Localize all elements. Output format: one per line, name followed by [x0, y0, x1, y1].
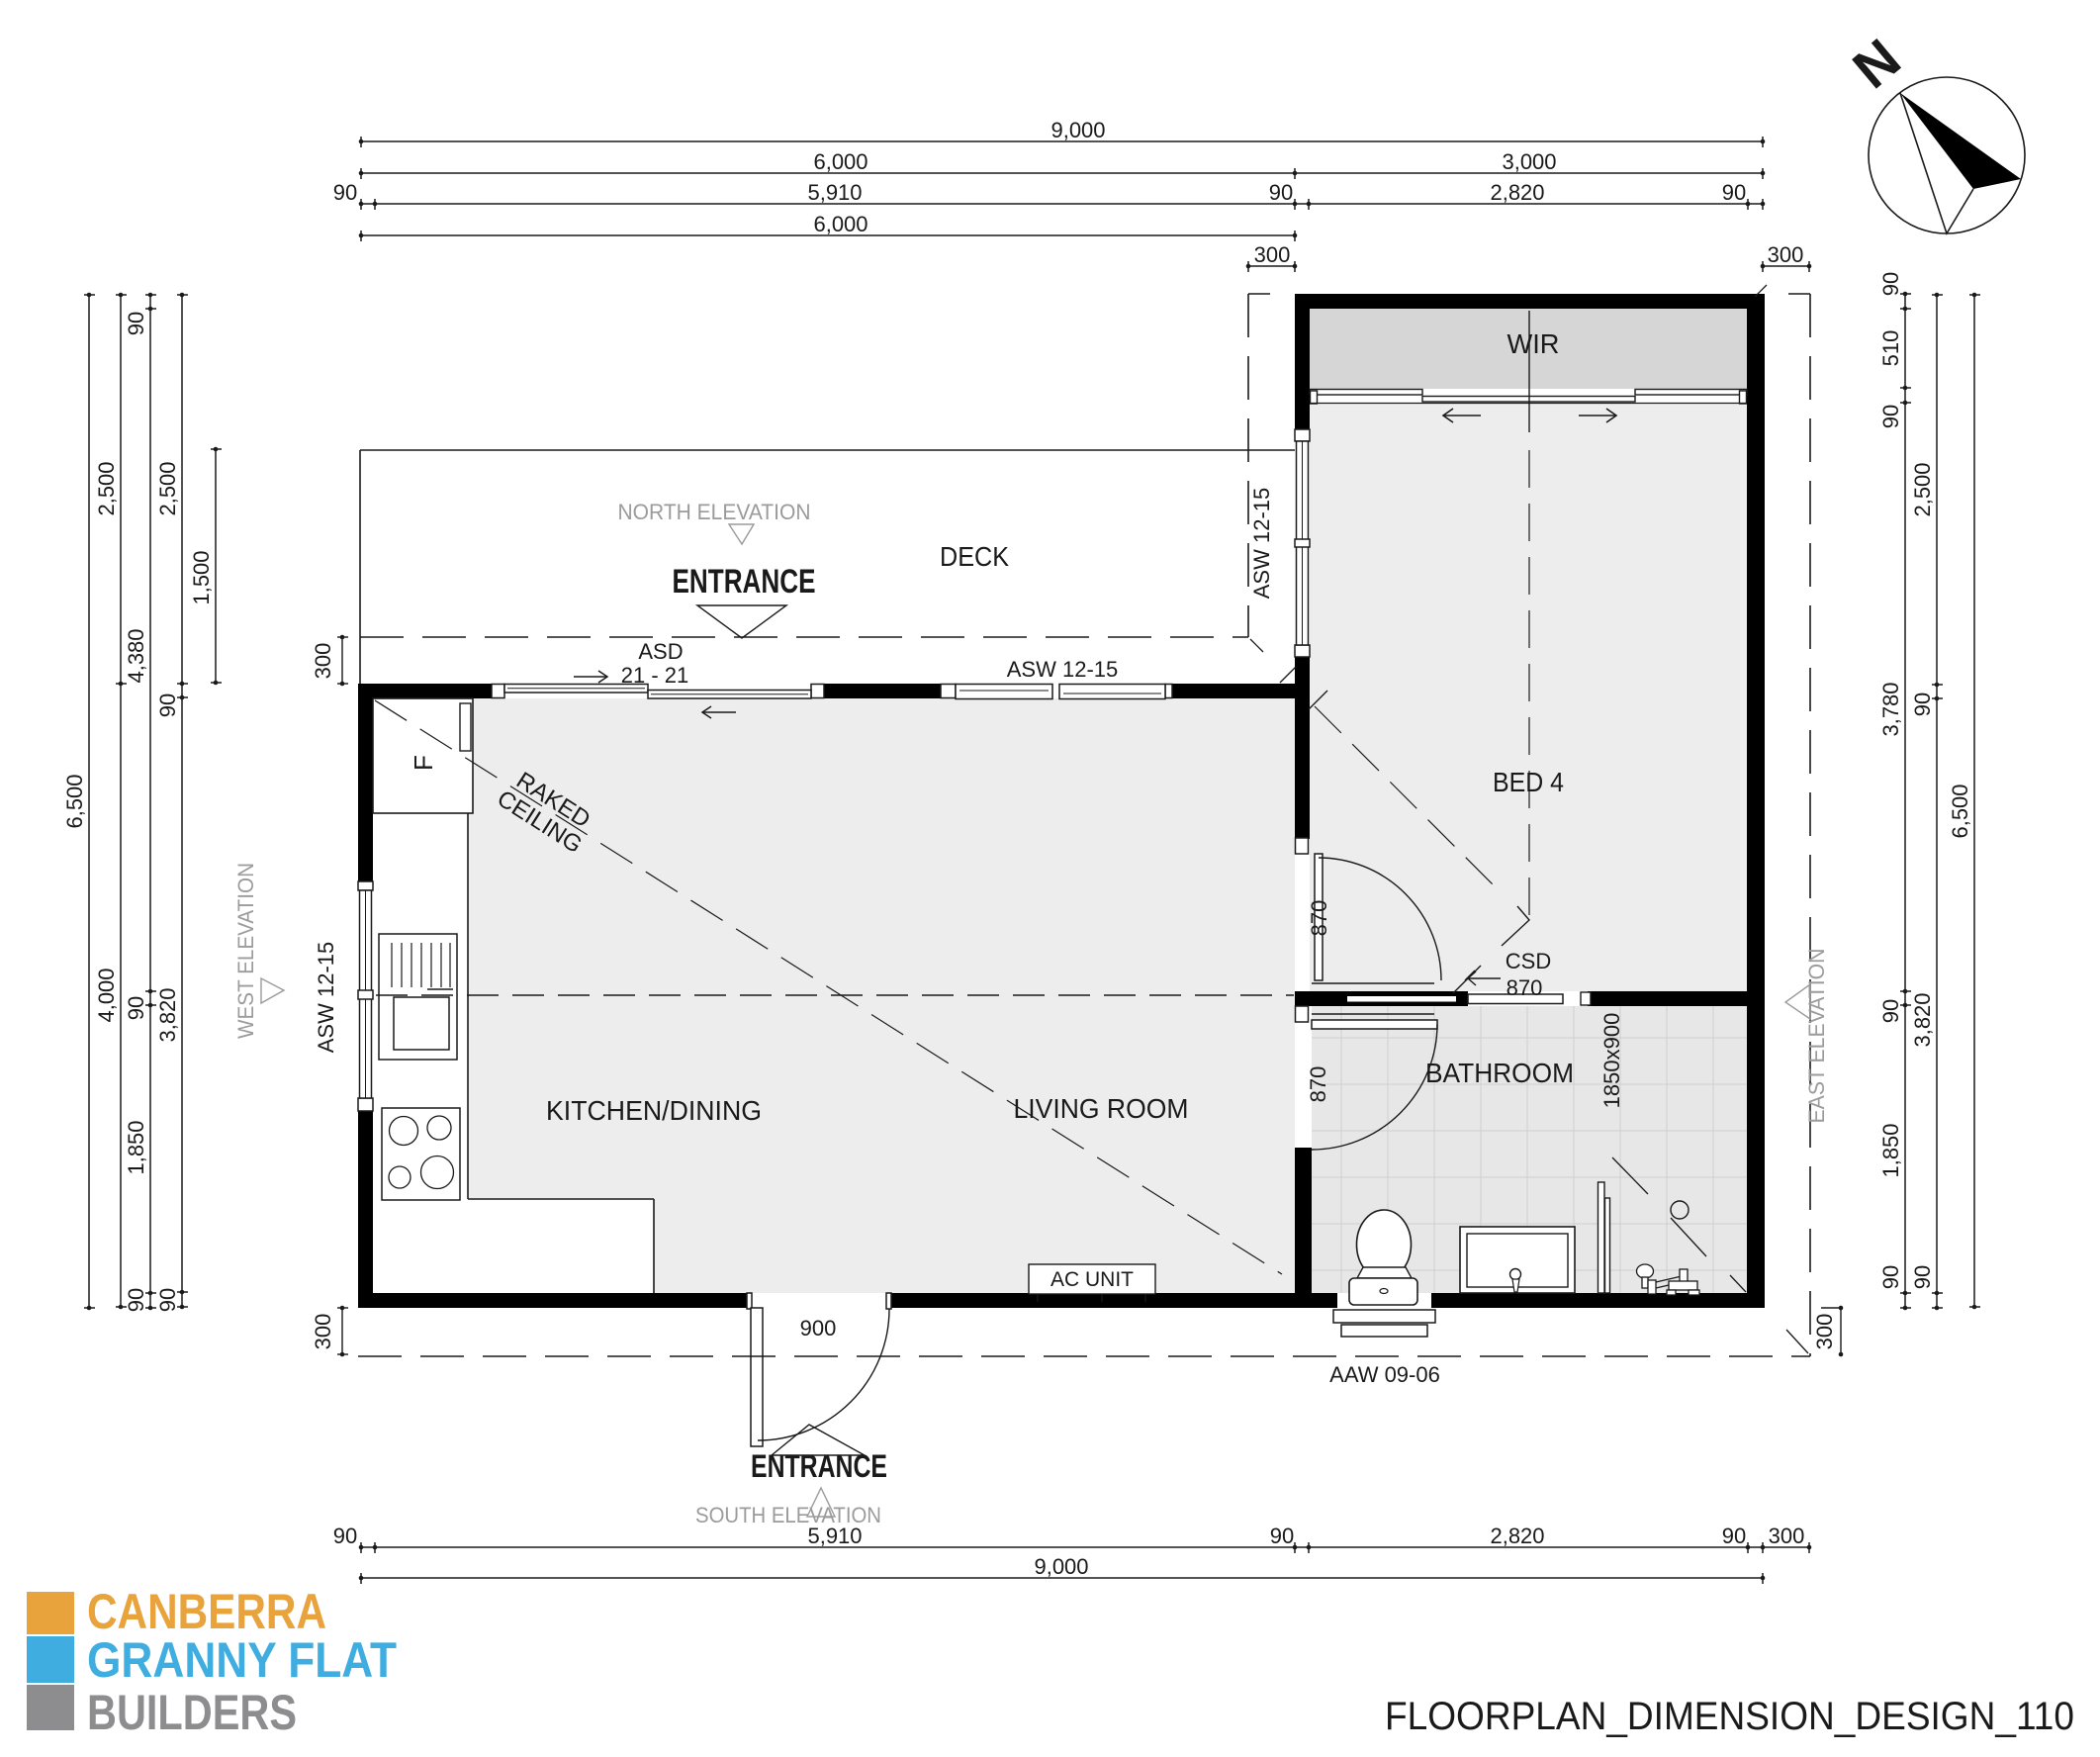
svg-text:6,000: 6,000 [813, 212, 867, 236]
svg-text:LIVING ROOM: LIVING ROOM [1014, 1093, 1189, 1124]
svg-text:DECK: DECK [940, 541, 1009, 572]
svg-text:5,910: 5,910 [807, 1524, 862, 1548]
svg-text:F: F [409, 755, 438, 771]
svg-text:90: 90 [1910, 693, 1935, 716]
svg-text:WIR: WIR [1507, 328, 1560, 359]
svg-text:1,850: 1,850 [124, 1120, 148, 1174]
svg-text:KITCHEN/DINING: KITCHEN/DINING [546, 1095, 762, 1126]
svg-text:FLOORPLAN_DIMENSION_DESIGN_110: FLOORPLAN_DIMENSION_DESIGN_110 [1385, 1695, 2074, 1738]
svg-text:300: 300 [1254, 242, 1291, 267]
svg-text:90: 90 [1910, 1265, 1935, 1289]
svg-text:ASW 12-15: ASW 12-15 [314, 942, 338, 1054]
svg-text:GRANNY FLAT: GRANNY FLAT [87, 1632, 397, 1688]
svg-text:90: 90 [1722, 180, 1746, 205]
svg-text:1,500: 1,500 [189, 550, 214, 604]
svg-text:300: 300 [1812, 1314, 1837, 1350]
svg-text:2,820: 2,820 [1490, 1524, 1544, 1548]
svg-text:CSD: CSD [1506, 949, 1551, 973]
svg-text:90: 90 [1722, 1524, 1746, 1548]
svg-text:9,000: 9,000 [1034, 1554, 1088, 1579]
svg-text:90: 90 [333, 1524, 357, 1548]
svg-text:90: 90 [1878, 1265, 1903, 1289]
svg-text:6,000: 6,000 [813, 149, 867, 174]
svg-text:510: 510 [1878, 330, 1903, 367]
svg-text:6,500: 6,500 [1948, 784, 1972, 838]
svg-text:1,850: 1,850 [1878, 1123, 1903, 1177]
svg-text:300: 300 [1769, 1524, 1805, 1548]
svg-text:EAST ELEVATION: EAST ELEVATION [1804, 949, 1829, 1124]
svg-text:ASW 12-15: ASW 12-15 [1249, 488, 1274, 600]
svg-text:90: 90 [1878, 272, 1903, 296]
svg-text:300: 300 [1768, 242, 1804, 267]
svg-text:90: 90 [155, 694, 180, 717]
svg-text:3,000: 3,000 [1502, 149, 1556, 174]
svg-text:ENTRANCE: ENTRANCE [673, 563, 816, 601]
svg-text:ASD: ASD [638, 639, 683, 664]
svg-text:3,780: 3,780 [1878, 682, 1903, 736]
svg-text:900: 900 [800, 1316, 837, 1341]
svg-text:870: 870 [1507, 975, 1543, 1000]
svg-text:CANBERRA: CANBERRA [87, 1584, 326, 1639]
svg-text:90: 90 [333, 180, 357, 205]
svg-text:300: 300 [311, 1314, 335, 1350]
svg-text:5,910: 5,910 [807, 180, 862, 205]
svg-text:300: 300 [311, 643, 335, 680]
svg-text:AAW 09-06: AAW 09-06 [1329, 1362, 1440, 1387]
svg-text:90: 90 [1270, 1524, 1294, 1548]
svg-text:2,500: 2,500 [1910, 462, 1935, 516]
svg-text:90: 90 [124, 1288, 148, 1312]
svg-text:4,000: 4,000 [94, 968, 119, 1022]
svg-text:9,000: 9,000 [1050, 118, 1105, 142]
svg-text:BATHROOM: BATHROOM [1425, 1058, 1574, 1088]
svg-text:BED 4: BED 4 [1493, 767, 1564, 797]
svg-text:3,820: 3,820 [1910, 992, 1935, 1047]
svg-text:21 - 21: 21 - 21 [621, 663, 689, 688]
svg-text:90: 90 [1269, 180, 1293, 205]
svg-text:ASW 12-15: ASW 12-15 [1007, 657, 1119, 682]
svg-text:2,500: 2,500 [155, 461, 180, 515]
svg-text:2,500: 2,500 [94, 461, 119, 515]
svg-text:6,500: 6,500 [62, 774, 87, 828]
svg-text:BUILDERS: BUILDERS [87, 1685, 297, 1740]
svg-text:3,820: 3,820 [155, 987, 180, 1042]
svg-text:90: 90 [1878, 999, 1903, 1023]
svg-text:870: 870 [1306, 1066, 1330, 1103]
svg-text:4,380: 4,380 [124, 628, 148, 683]
svg-text:870: 870 [1307, 900, 1331, 937]
svg-text:1850x900: 1850x900 [1599, 1013, 1624, 1109]
svg-text:90: 90 [124, 996, 148, 1020]
svg-text:ENTRANCE: ENTRANCE [751, 1448, 887, 1484]
svg-text:2,820: 2,820 [1490, 180, 1544, 205]
svg-text:WEST ELEVATION: WEST ELEVATION [233, 863, 258, 1039]
svg-text:NORTH ELEVATION: NORTH ELEVATION [618, 500, 811, 524]
svg-text:90: 90 [1878, 405, 1903, 428]
svg-text:90: 90 [155, 1288, 180, 1312]
svg-text:90: 90 [124, 312, 148, 335]
svg-text:AC UNIT: AC UNIT [1050, 1268, 1134, 1291]
